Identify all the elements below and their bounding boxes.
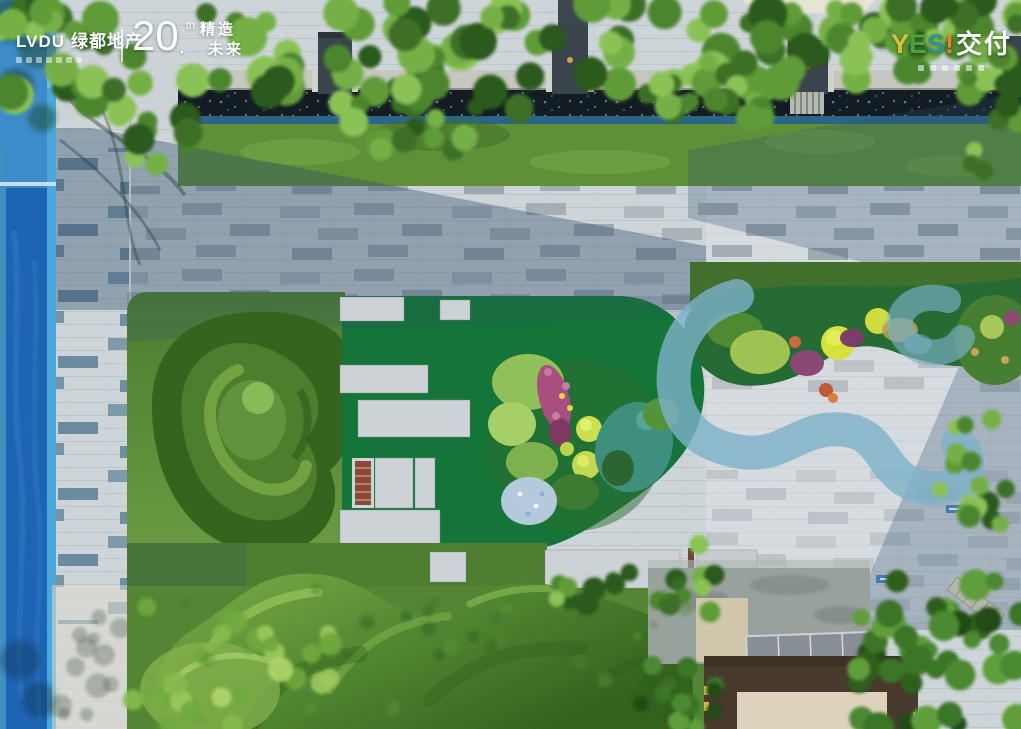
yes-letter-y: Y	[891, 29, 909, 60]
logo-divider	[121, 29, 123, 62]
anniversary-slogan: 精造 未来	[200, 20, 244, 59]
garden-bench	[352, 458, 374, 508]
anniversary-slogan-line2: 未来	[208, 40, 244, 60]
delivery-campaign-logo: Y E S ! 交付	[891, 24, 1012, 71]
anniversary-number: 20	[132, 15, 179, 59]
yes-letter-e: E	[909, 29, 927, 60]
anniversary-dot: .	[179, 33, 185, 59]
anniversary-logo: 20 . th 精造 未来	[132, 15, 244, 59]
aerial-photo: LVDU 绿都地产 20 . th 精造 未来 Y E S ! 交付	[0, 0, 1021, 729]
developer-tagline-illegible	[16, 57, 143, 63]
yes-letter-s: S	[927, 29, 945, 60]
anniversary-suffix: th	[186, 20, 195, 59]
delivery-chinese: 交付	[956, 24, 1012, 61]
developer-logo-latin: LVDU	[16, 32, 65, 52]
delivery-tagline-illegible	[918, 65, 984, 71]
anniversary-slogan-line1: 精造	[200, 20, 244, 40]
developer-logo: LVDU 绿都地产	[16, 27, 143, 63]
yes-exclamation: !	[945, 29, 954, 60]
landscape-scene	[0, 0, 1021, 729]
